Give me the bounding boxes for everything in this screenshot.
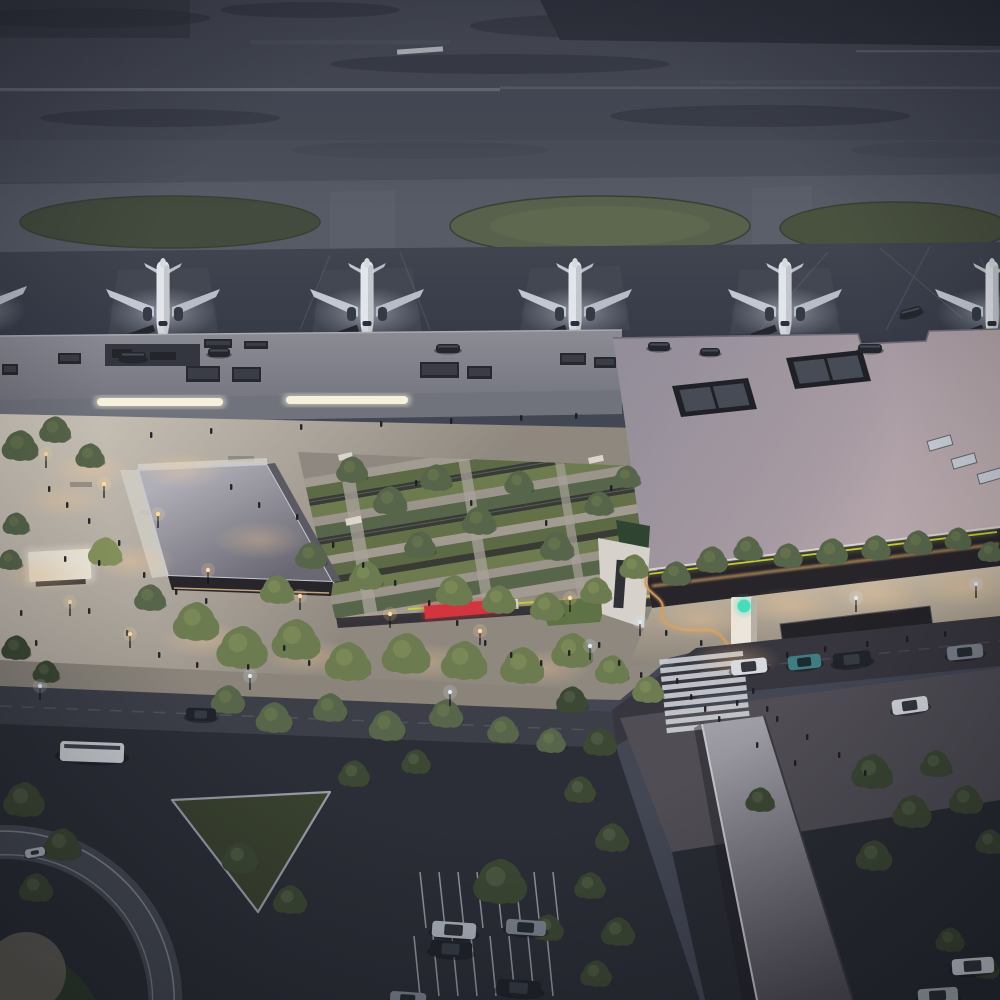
rendered-scene [0,0,1000,1000]
vignette [0,0,1000,1000]
airport-rendering [0,0,1000,1000]
